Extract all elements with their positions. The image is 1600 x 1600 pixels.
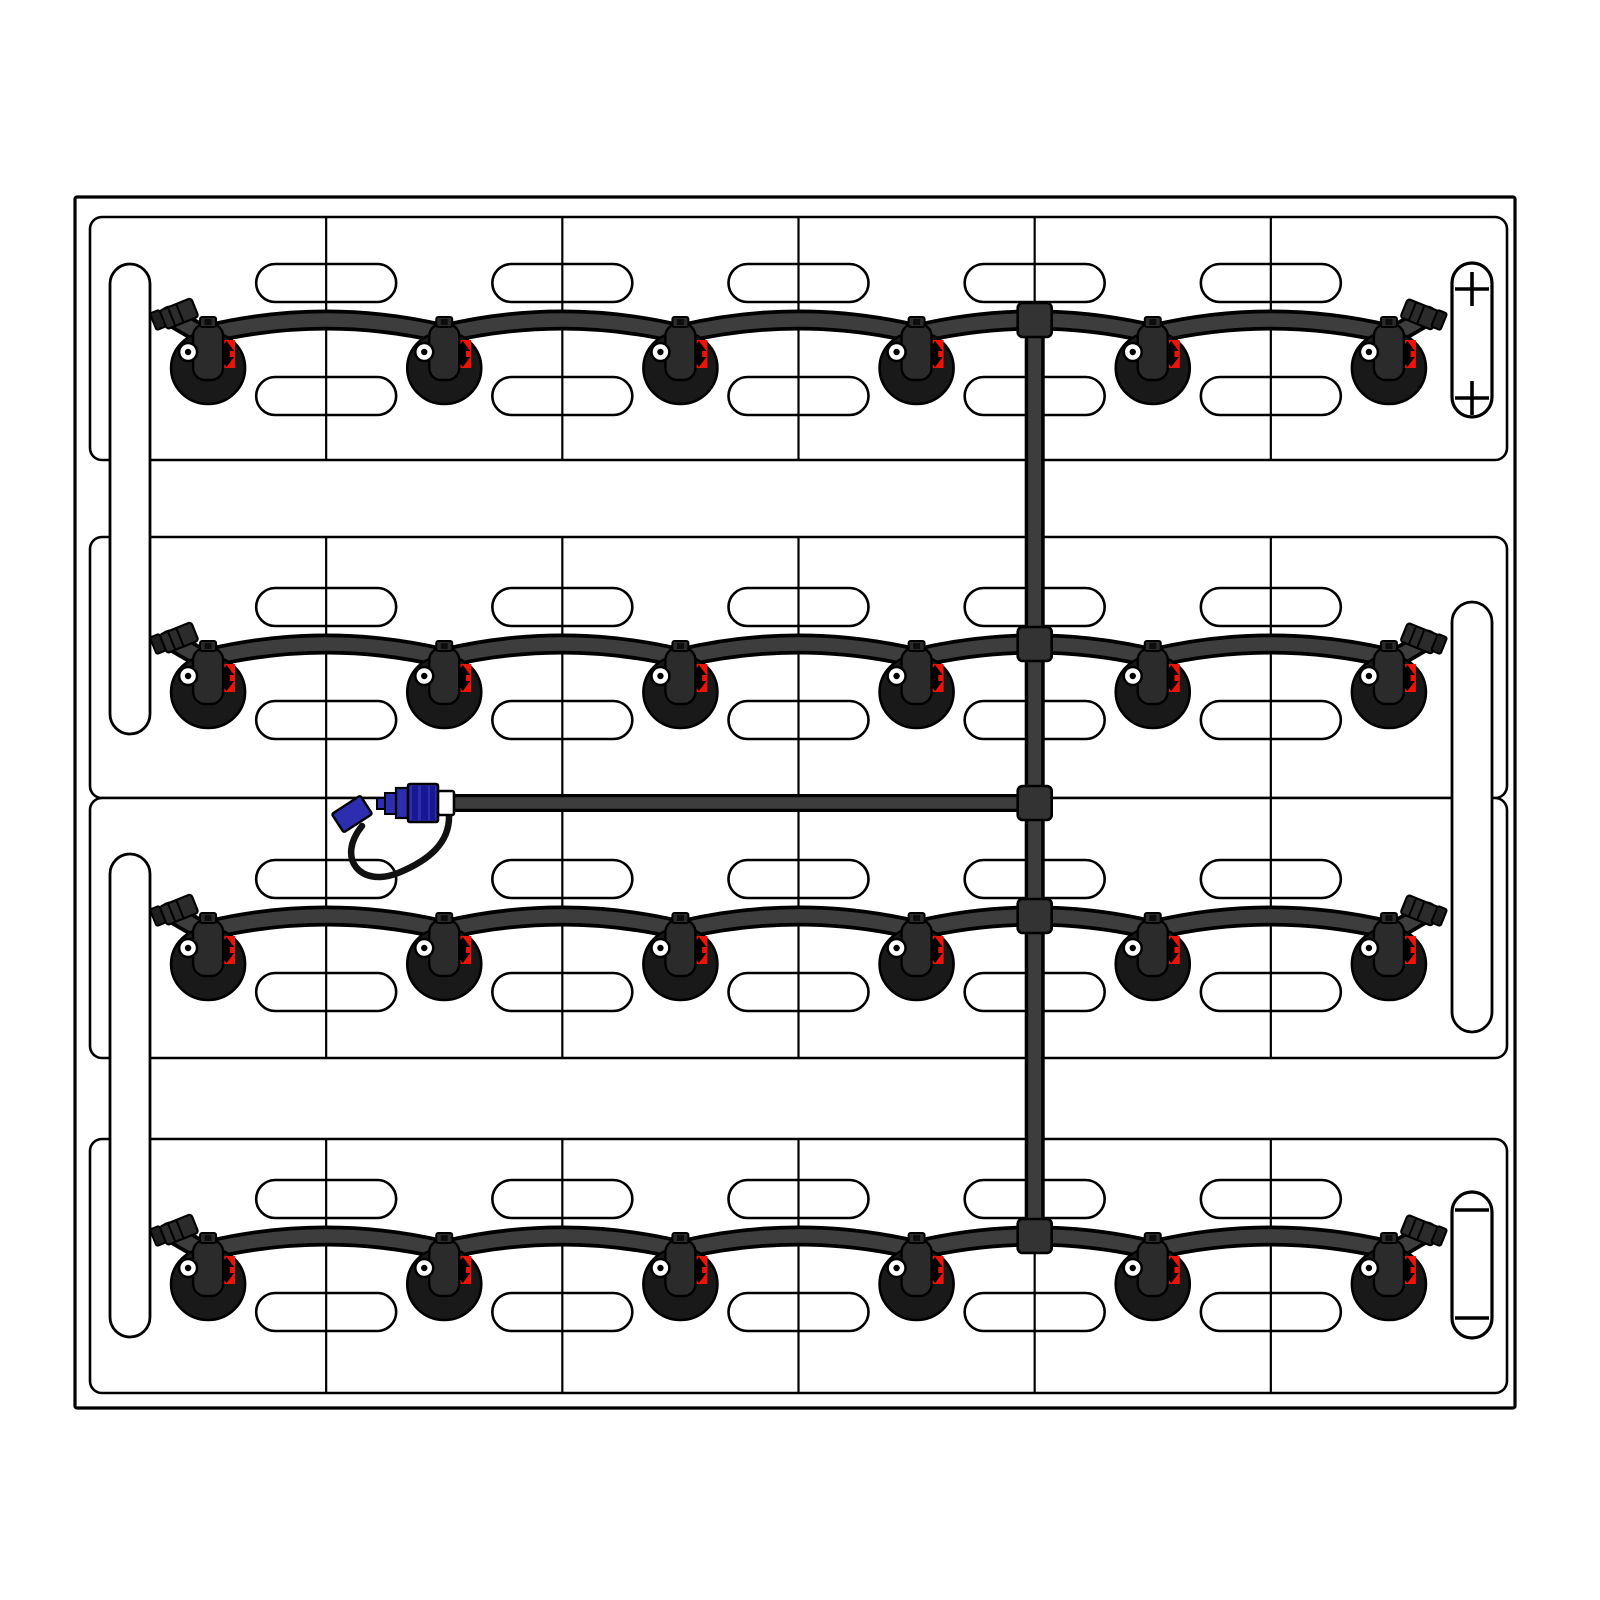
junction-fitting-1 — [1018, 303, 1052, 337]
lift-handle-1 — [110, 264, 150, 734]
lift-handle-2 — [110, 854, 150, 1337]
junction-fitting-5 — [1018, 1219, 1052, 1253]
lift-handle-3 — [1452, 602, 1492, 1032]
negative-terminal — [1452, 1192, 1492, 1338]
junction-fitting-3 — [1018, 786, 1052, 820]
coupler-tip-large — [396, 788, 408, 818]
junction-fitting-4 — [1018, 899, 1052, 933]
battery-watering-diagram: ++−− — [0, 0, 1600, 1600]
coupler-tip-small — [377, 798, 385, 809]
coupler-tip-mid — [385, 793, 396, 814]
coupler-collar — [438, 791, 454, 815]
diagram-page: ++−− — [0, 0, 1600, 1600]
junction-fitting-2 — [1018, 627, 1052, 661]
